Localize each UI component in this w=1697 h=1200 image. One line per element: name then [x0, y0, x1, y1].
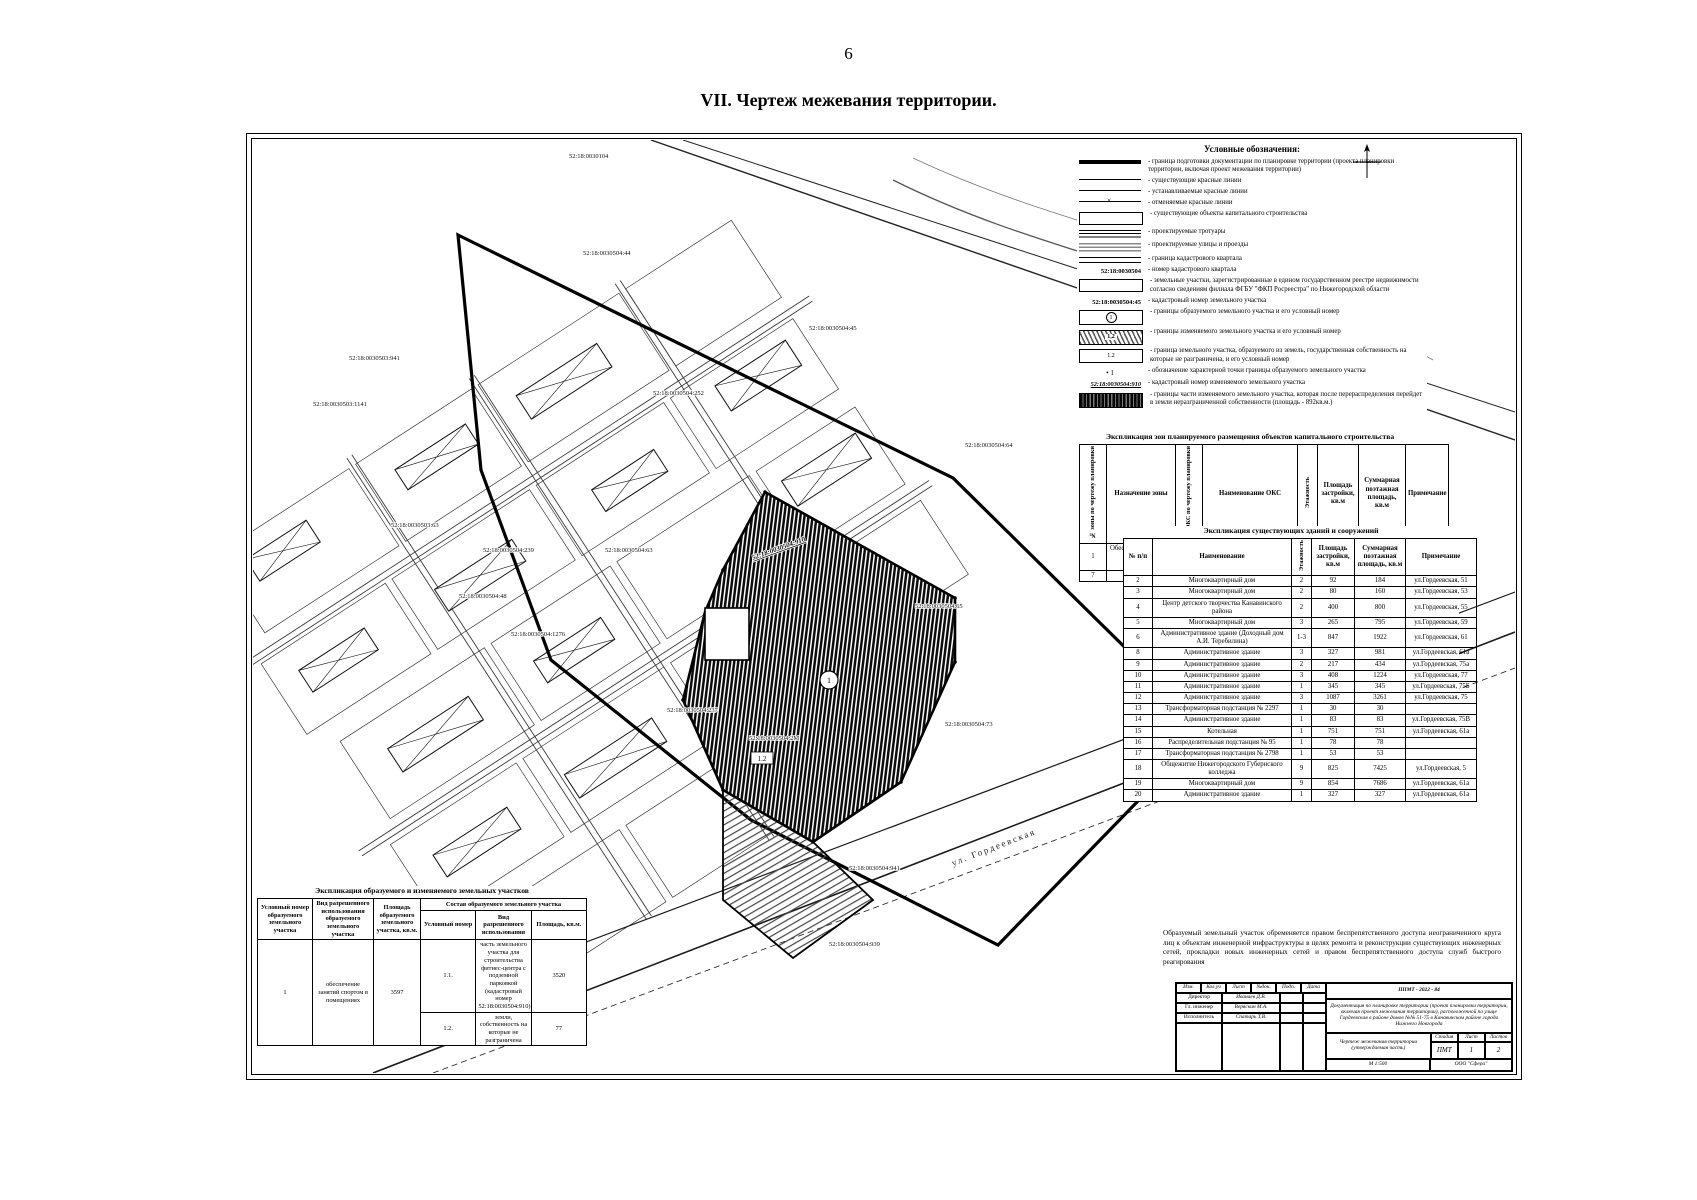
table-cell: Административное здание [1153, 790, 1292, 801]
table-cell: Многоквартирный дом [1153, 779, 1292, 790]
table-cell: ул.Гордеевская, 51 [1406, 576, 1477, 587]
title-block-left: Изм.Кол.учЛист№док.Подп.Дата Директор Ив… [1176, 983, 1326, 1071]
table-cell: 1 [1292, 715, 1312, 726]
table-row: 19Многоквартирный дом98547686ул.Гордеевс… [1124, 779, 1477, 790]
table-cell: ул.Гордеевская, 5 [1406, 759, 1477, 778]
page-title: VII. Чертеж межевания территории. [0, 90, 1697, 111]
table-cell: 17 [1124, 748, 1153, 759]
col-header: Вид разрешенного использования образуемо… [313, 899, 374, 940]
sheets-label: Листов [1485, 1033, 1512, 1042]
table-cell: 1 [1292, 737, 1312, 748]
table-cell: Многоквартирный дом [1153, 587, 1292, 598]
changed-parcel-cadastral-number: 52:18:0030504:910 [1079, 381, 1141, 388]
table-cell: Многоквартирный дом [1153, 617, 1292, 628]
table-row: 5Многоквартирный дом3265795ул.Гордеевска… [1124, 617, 1477, 628]
table-cell: 13 [1124, 704, 1153, 715]
table-cell: Трансформаторная подстанция № 2297 [1153, 704, 1292, 715]
street-hatch-icon [1079, 243, 1141, 252]
col-header: Условный номер [421, 911, 476, 940]
table-cell: 400 [1312, 598, 1355, 617]
legend-item: - проектируемые улицы и проезды [1079, 241, 1425, 252]
registered-parcel-icon [1079, 279, 1143, 292]
table-cell [1406, 748, 1477, 759]
stamp-role-row: Директор Иванаев Д.В. [1176, 993, 1326, 1003]
table-cell: 10 [1124, 670, 1153, 681]
legend-item-label: - проектируемые тротуары [1148, 228, 1225, 236]
table-cell: 18 [1124, 759, 1153, 778]
buildings-table-panel: Экспликация существующих зданий и сооруж… [1123, 526, 1459, 802]
stamp-empty-cell [1303, 1003, 1326, 1013]
legend-item-label: - номер кадастрового квартала [1148, 266, 1236, 274]
boundary-thick-line-icon [1079, 160, 1141, 164]
table-cell: 30 [1312, 704, 1355, 715]
changed-parcel-icon: 1,2 [1079, 330, 1143, 345]
table-cell: 345 [1355, 681, 1406, 692]
cadastral-number-label: 52:18:0030504:239 [483, 547, 534, 554]
table-cell: 184 [1355, 576, 1406, 587]
table-cell: ул.Гордеевская, 55 [1406, 598, 1477, 617]
sheets-value: 2 [1485, 1042, 1512, 1059]
table-cell: Центр детского творчества Канавинского р… [1153, 598, 1292, 617]
stamp-empty-row [1176, 1023, 1326, 1071]
table-row: 11Административное здание1345345ул.Горде… [1124, 681, 1477, 692]
table-cell: 265 [1312, 617, 1355, 628]
table-row: 6Административное здание (Доходный дом А… [1124, 629, 1477, 648]
cadastral-number-label: 52:18:0030504:252 [653, 390, 704, 397]
cadastral-number-label: 52:18:0030504:237 [667, 707, 719, 714]
organization-name: ООО "Сфера" [1430, 1059, 1512, 1071]
table-cell: 345 [1312, 681, 1355, 692]
table-cell: 795 [1355, 617, 1406, 628]
table-row: 15Котельная1751751ул.Гордеевская, 61а [1124, 726, 1477, 737]
table-cell: Распределительная подстанция № 95 [1153, 737, 1292, 748]
table-cell: 9 [1124, 659, 1153, 670]
stamp-header-row: Изм.Кол.учЛист№док.Подп.Дата [1176, 983, 1326, 993]
col-header: Наименование [1153, 539, 1292, 576]
table-cell: 16 [1124, 737, 1153, 748]
table-cell: 434 [1355, 659, 1406, 670]
role-label: Гл. инженер [1176, 1003, 1222, 1013]
table-cell: 854 [1312, 779, 1355, 790]
table-row: 17Трансформаторная подстанция № 27981535… [1124, 748, 1477, 759]
cadastral-number-label: 52:18:0030504:65 [915, 603, 963, 610]
table-cell: 83 [1312, 715, 1355, 726]
table-cell: 11 [1124, 681, 1153, 692]
table-cell: 1 [1292, 726, 1312, 737]
role-name: Веряскин М.А. [1222, 1003, 1280, 1013]
legend-item: - отменяемые красные линии [1079, 199, 1425, 207]
stage-value: ПМТ [1431, 1042, 1458, 1059]
stamp-header-cell: №док. [1251, 983, 1276, 993]
formed-parcel-number: 1 [827, 676, 831, 685]
table-cell [1406, 737, 1477, 748]
stamp-empty-cell [1222, 1023, 1280, 1071]
stamp-empty-cell [1176, 1023, 1222, 1071]
table-cell: ул.Гордеевская, 75Б [1406, 681, 1477, 692]
table-cell: 53 [1355, 748, 1406, 759]
table-cell [1406, 704, 1477, 715]
table-cell: 53 [1312, 748, 1355, 759]
col-header: Состав образуемого земельного участка [421, 899, 587, 911]
table-cell: ул.Гордеевская, 75а [1406, 659, 1477, 670]
table-cell: Административное здание [1153, 648, 1292, 659]
table-cell: 14 [1124, 715, 1153, 726]
legend-item: 1.2- граница земельного участка, образуе… [1079, 347, 1425, 364]
stamp-empty-cell [1280, 993, 1303, 1003]
legend-item: 1,2- границы изменяемого земельного учас… [1079, 328, 1425, 345]
stamp-header-cell: Лист [1226, 983, 1251, 993]
legend-item-label: - границы части изменяемого земельного у… [1150, 391, 1425, 408]
table-cell: 3 [1124, 587, 1153, 598]
title-block-right: ППМТ - 2022 - 84 Документация по планиро… [1326, 983, 1512, 1071]
col-header: № п/п [1124, 539, 1153, 576]
legend-item: 52:18:0030504- номер кадастрового кварта… [1079, 266, 1425, 275]
stamp-role-row: Гл. инженер Веряскин М.А. [1176, 1003, 1326, 1013]
table-cell: ул.Гордеевская, 77 [1406, 670, 1477, 681]
zones-table-title: Экспликация зон планируемого размещения … [1079, 432, 1421, 441]
table-cell: 3261 [1355, 693, 1406, 704]
sidewalk-hatch-icon [1079, 230, 1141, 239]
role-name: Спатарь Т.В. [1222, 1013, 1280, 1023]
stamp-header-cell: Изм. [1176, 983, 1201, 993]
table-row: 18Общежитие Нижегородского Губернского к… [1124, 759, 1477, 778]
table-cell: 1087 [1312, 693, 1355, 704]
table-cell: 1 [1080, 543, 1107, 570]
table-cell: 2 [1292, 576, 1312, 587]
cadastral-number-label: 52:18:0030504:939 [829, 941, 880, 948]
cadastral-number-label: 52:18:0030504:1276 [511, 631, 566, 638]
table-cell: 2 [1292, 598, 1312, 617]
cadastral-number-label: 52:18:0030504:48 [459, 593, 507, 600]
table-cell: Общежитие Нижегородского Губернского кол… [1153, 759, 1292, 778]
table-cell: Трансформаторная подстанция № 2798 [1153, 748, 1292, 759]
stamp-empty-cell [1303, 1023, 1326, 1071]
table-cell: 1-3 [1292, 629, 1312, 648]
role-label: Директор [1176, 993, 1222, 1003]
unbounded-parcel-number: 1.2 [758, 755, 767, 763]
stamp-role-row: Исполнитель Спатарь Т.В. [1176, 1013, 1326, 1023]
col-header: Площадь образуемого земельного участка, … [374, 899, 421, 940]
legend-item: - проектируемые тротуары [1079, 228, 1425, 239]
role-name: Иванаев Д.В. [1222, 993, 1280, 1003]
cadastral-number-label: 52:18:0030104 [569, 153, 609, 160]
table-cell: 20 [1124, 790, 1153, 801]
legend-item-label: - земельные участки, зарегистрированные … [1150, 277, 1425, 294]
legend-item: - граница кадастрового квартала [1079, 255, 1425, 263]
cadastral-number-label: 52:18:0030503:1141 [313, 401, 367, 408]
legend-item-label: - границы изменяемого земельного участка… [1150, 328, 1341, 336]
stamp-empty-cell [1303, 1013, 1326, 1023]
table-cell: 3 [1292, 648, 1312, 659]
table-cell: 2 [1292, 587, 1312, 598]
sub-use: часть земельного участка для строительст… [476, 940, 531, 1012]
table-cell: ул.Гордеевская, 61а [1406, 779, 1477, 790]
legend-item: - земельные участки, зарегистрированные … [1079, 277, 1425, 294]
col-header: Суммарная поэтажная площадь, кв.м [1355, 539, 1406, 576]
sheet-label: Лист [1458, 1033, 1485, 1042]
legend-item: - существующие объекты капитального стро… [1079, 210, 1425, 225]
stamp-header-cell: Дата [1301, 983, 1326, 993]
cadastral-number-label: 52:18:0030504:2М [749, 735, 799, 742]
table-cell: Административное здание [1153, 670, 1292, 681]
table-row: 9Административное здание2217434ул.Гордее… [1124, 659, 1477, 670]
page-number: 6 [0, 44, 1697, 64]
table-cell: 327 [1312, 648, 1355, 659]
parcel-use: обеспечение занятий спортом в помещениях [313, 940, 374, 1046]
col-header: Примечание [1406, 539, 1477, 576]
legend-items: - граница подготовки документации по пла… [1079, 158, 1425, 408]
note-panel: Образуемый земельный участок обременяетс… [1163, 929, 1501, 968]
characteristic-point-icon: • 1 [1079, 369, 1141, 377]
table-cell: ул.Гордеевская, 59 [1406, 617, 1477, 628]
parcel-cadastral-number: 52:18:0030504:45 [1079, 299, 1141, 306]
table-cell: Многоквартирный дом [1153, 576, 1292, 587]
sub-area: 77 [531, 1012, 586, 1046]
table-row: 4Центр детского творчества Канавинского … [1124, 598, 1477, 617]
buildings-table-title: Экспликация существующих зданий и сооруж… [1123, 526, 1459, 535]
cadastral-quarter-line-icon [1079, 257, 1141, 263]
table-cell: 825 [1312, 759, 1355, 778]
table-cell: 160 [1355, 587, 1406, 598]
cancelled-red-line-icon [1079, 201, 1141, 202]
legend-item-label: - кадастровый номер земельного участка [1148, 297, 1266, 305]
table-cell: 7425 [1355, 759, 1406, 778]
table-cell: 1 [1292, 704, 1312, 715]
table-row: 10Административное здание34081224ул.Горд… [1124, 670, 1477, 681]
cadastral-number-label: 52:18:0030503:63 [391, 522, 439, 529]
stamp-empty-cell [1280, 1003, 1303, 1013]
stamp-middle-row: Чертеж межевания территории (утверждаема… [1326, 1033, 1512, 1059]
legend-item: 52:18:0030504:45- кадастровый номер земе… [1079, 297, 1425, 306]
existing-red-line-icon [1079, 179, 1141, 180]
stage-label: Стадия [1431, 1033, 1458, 1042]
table-cell: 5 [1124, 617, 1153, 628]
sub-area: 3520 [531, 940, 586, 1012]
table-cell: ул.Гордеевская, 61а [1406, 726, 1477, 737]
parcel-area: 3597 [374, 940, 421, 1046]
sub-num: 1.1. [421, 940, 476, 1012]
col-header: Площадь, кв.м. [531, 911, 586, 940]
table-cell: 327 [1355, 790, 1406, 801]
table-cell: Административное здание [1153, 715, 1292, 726]
table-cell: Административное здание (Доходный дом А.… [1153, 629, 1292, 648]
table-row: 16Распределительная подстанция № 9517878 [1124, 737, 1477, 748]
table-row: 20Административное здание1327327ул.Горде… [1124, 790, 1477, 801]
legend-item: • 1- обозначение характерной точки грани… [1079, 367, 1425, 377]
cadastral-number-label: 52:18:0030504:44 [583, 250, 631, 257]
table-cell: 981 [1355, 648, 1406, 659]
title-block: Изм.Кол.учЛист№док.Подп.Дата Директор Ив… [1175, 982, 1513, 1072]
table-cell: Котельная [1153, 726, 1292, 737]
table-row: 2Многоквартирный дом292184ул.Гордеевская… [1124, 576, 1477, 587]
table-cell: 7686 [1355, 779, 1406, 790]
legend-item: - границы части изменяемого земельного у… [1079, 391, 1425, 408]
table-cell: 3 [1292, 670, 1312, 681]
table-cell: 217 [1312, 659, 1355, 670]
legend-item-label: - проектируемые улицы и проезды [1148, 241, 1248, 249]
col-header: Этажность [1292, 539, 1312, 576]
table-cell: 408 [1312, 670, 1355, 681]
table-cell: ул.Гордеевская, 61а [1406, 648, 1477, 659]
table-cell: 1 [1292, 681, 1312, 692]
table-cell: 751 [1312, 726, 1355, 737]
drawing-title: Чертеж межевания территории (утверждаема… [1326, 1033, 1431, 1059]
cadastral-number-label: 52:18:0030504:73 [945, 721, 993, 728]
table-cell: 7 [1080, 570, 1107, 581]
parcel-notch [705, 608, 749, 660]
parcels-table-panel: Экспликация образуемого и изменяемого зе… [257, 886, 587, 1046]
table-cell: ул.Гордеевская, 75В [1406, 715, 1477, 726]
table-cell: 30 [1355, 704, 1406, 715]
table-cell: 8 [1124, 648, 1153, 659]
unbounded-parcel-icon: 1.2 [1079, 349, 1143, 363]
table-cell: 3 [1292, 693, 1312, 704]
col-header: Условный номер образуемого земельного уч… [258, 899, 313, 940]
table-cell: 78 [1355, 737, 1406, 748]
document-description: Документация по планировке территории (п… [1326, 999, 1512, 1033]
stamp-header-cell: Подп. [1276, 983, 1301, 993]
table-cell: ул.Гордеевская, 61 [1406, 629, 1477, 648]
table-cell: 6 [1124, 629, 1153, 648]
table-cell: 4 [1124, 598, 1153, 617]
table-row: 14Административное здание18383ул.Гордеев… [1124, 715, 1477, 726]
legend-item-label: - обозначение характерной точки границы … [1148, 367, 1366, 375]
table-cell: 2 [1292, 659, 1312, 670]
table-cell: 327 [1312, 790, 1355, 801]
drawing-sheet: 1 1.2 52:18:0030504:910 ул. Гордеевская … [246, 133, 1522, 1080]
stamp-header-cell: Кол.уч [1201, 983, 1226, 993]
table-cell: 847 [1312, 629, 1355, 648]
table-cell: 1922 [1355, 629, 1406, 648]
table-cell: 2 [1124, 576, 1153, 587]
table-cell: Административное здание [1153, 659, 1292, 670]
table-cell: 3 [1292, 617, 1312, 628]
scale-value: М 1:500 [1326, 1059, 1430, 1071]
table-row: 13Трансформаторная подстанция № 22971303… [1124, 704, 1477, 715]
stamp-empty-cell [1280, 1023, 1303, 1071]
col-header: Площадь застройки, кв.м [1312, 539, 1355, 576]
legend-item-label: - существующие объекты капитального стро… [1150, 210, 1307, 218]
cadastral-number-label: 52:18:0030504:45 [809, 325, 857, 332]
legend-item: 52:18:0030504:910- кадастровый номер изм… [1079, 379, 1425, 388]
table-cell: 751 [1355, 726, 1406, 737]
cadastral-number-label: 52:18:0030504:941 [849, 865, 900, 872]
parcels-table: Условный номер образуемого земельного уч… [257, 898, 587, 1046]
table-row: 1 обеспечение занятий спортом в помещени… [258, 940, 587, 1012]
table-cell: 800 [1355, 598, 1406, 617]
capital-object-icon [1079, 212, 1143, 225]
redistribution-part-icon [1079, 393, 1143, 408]
table-cell: ул.Гордеевская, 75 [1406, 693, 1477, 704]
col-header: № зоны по чертежу планировки [1080, 445, 1107, 544]
table-cell: ул.Гордеевская, 61а [1406, 790, 1477, 801]
cadastral-quarter-number: 52:18:0030504 [1079, 268, 1141, 275]
legend-item: - устанавливаемые красные линии [1079, 188, 1425, 196]
col-header: Вид разрешенного использования [476, 911, 531, 940]
legend-item-label: - кадастровый номер изменяемого земельно… [1148, 379, 1305, 387]
document-code: ППМТ - 2022 - 84 [1326, 983, 1512, 999]
stage-sheet-block: Стадия Лист Листов ПМТ 1 2 [1431, 1033, 1512, 1059]
table-cell: 9 [1292, 779, 1312, 790]
legend-item-label: - граница кадастрового квартала [1148, 255, 1242, 263]
stamp-empty-cell [1280, 1013, 1303, 1023]
table-cell: 92 [1312, 576, 1355, 587]
table-cell: ул.Гордеевская, 53 [1406, 587, 1477, 598]
legend-item-label: - устанавливаемые красные линии [1148, 188, 1248, 196]
table-cell: 80 [1312, 587, 1355, 598]
formed-parcel-icon: 1 [1079, 310, 1143, 325]
cadastral-number-label: 52:18:0030504:64 [965, 442, 1013, 449]
table-row: 3Многоквартирный дом280160ул.Гордеевская… [1124, 587, 1477, 598]
table-cell: 19 [1124, 779, 1153, 790]
sheet-value: 1 [1458, 1042, 1485, 1059]
stamp-empty-cell [1303, 993, 1326, 1003]
table-cell: Административное здание [1153, 681, 1292, 692]
sub-use: земли, собственность на которые не разгр… [476, 1012, 531, 1046]
table-row: 8Административное здание3327981ул.Гордее… [1124, 648, 1477, 659]
table-cell: 1 [1292, 748, 1312, 759]
table-cell: 1224 [1355, 670, 1406, 681]
north-arrow-icon [1350, 142, 1384, 182]
stamp-bottom-row: М 1:500 ООО "Сфера" [1326, 1059, 1512, 1071]
table-cell: Административное здание [1153, 693, 1292, 704]
legend-item-label: - отменяемые красные линии [1148, 199, 1233, 207]
legend-item-label: - границы образуемого земельного участка… [1150, 308, 1340, 316]
legend-item-label: - существующие красные линии [1148, 177, 1241, 185]
cadastral-number-label: 52:18:0030504:63 [605, 547, 653, 554]
legend-item: 1- границы образуемого земельного участк… [1079, 308, 1425, 325]
role-label: Исполнитель [1176, 1013, 1222, 1023]
table-row: 12Административное здание310873261ул.Гор… [1124, 693, 1477, 704]
cadastral-number-label: 52:18:0030503:941 [349, 355, 400, 362]
parcel-num: 1 [258, 940, 313, 1046]
parcels-table-title: Экспликация образуемого и изменяемого зе… [257, 886, 587, 895]
table-cell: 12 [1124, 693, 1153, 704]
easement-note: Образуемый земельный участок обременяетс… [1163, 929, 1501, 968]
table-cell: 9 [1292, 759, 1312, 778]
legend-item-label: - граница земельного участка, образуемог… [1150, 347, 1425, 364]
buildings-table: № п/п Наименование Этажность Площадь зас… [1123, 538, 1477, 802]
sub-num: 1.2. [421, 1012, 476, 1046]
table-cell: 83 [1355, 715, 1406, 726]
table-cell: 1 [1292, 790, 1312, 801]
table-cell: 78 [1312, 737, 1355, 748]
table-cell: 15 [1124, 726, 1153, 737]
buildings-table-body: 2Многоквартирный дом292184ул.Гордеевская… [1124, 576, 1477, 801]
established-red-line-icon [1079, 190, 1141, 191]
